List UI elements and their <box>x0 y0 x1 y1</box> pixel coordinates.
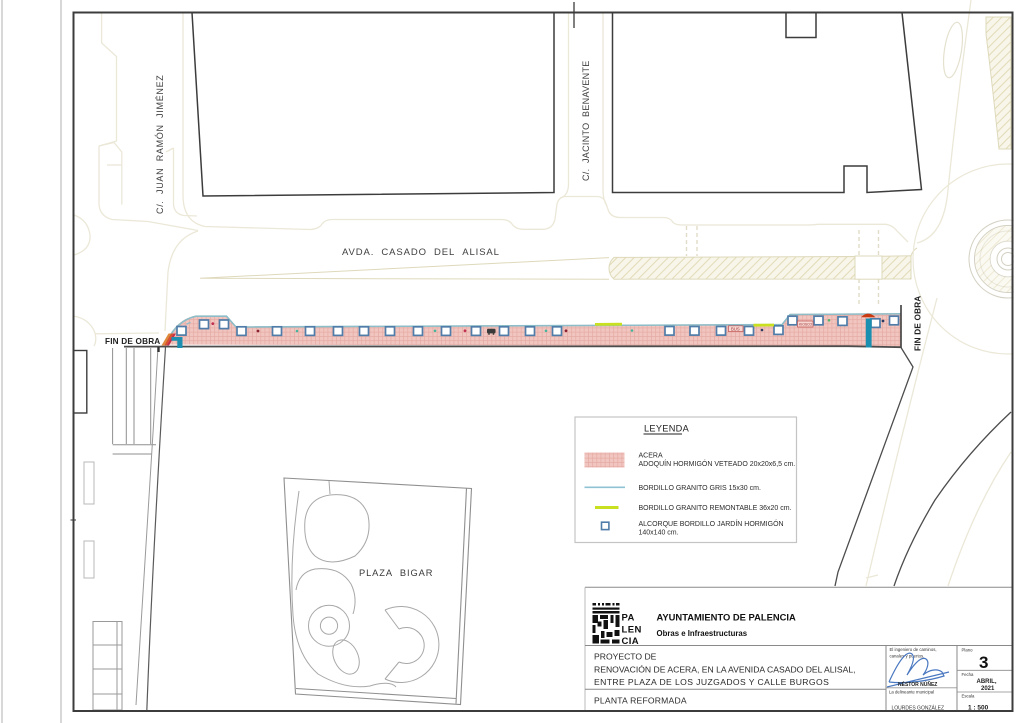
svg-text:ABRIL,: ABRIL, <box>977 679 997 685</box>
svg-text:LEN: LEN <box>622 625 642 636</box>
svg-text:Plano: Plano <box>962 648 974 653</box>
svg-text:140x140 cm.: 140x140 cm. <box>639 529 679 536</box>
svg-text:RENOVACIÓN DE ACERA, EN LA AVE: RENOVACIÓN DE ACERA, EN LA AVENIDA CASAD… <box>594 665 856 675</box>
svg-text:BORDILLO GRANITO REMONTABLE 36: BORDILLO GRANITO REMONTABLE 36x20 cm. <box>639 505 792 512</box>
svg-text:2021: 2021 <box>981 686 995 692</box>
svg-text:3: 3 <box>979 653 988 672</box>
svg-text:Escala: Escala <box>962 694 976 699</box>
svg-text:NÉSTOR NÚÑEZ: NÉSTOR NÚÑEZ <box>898 680 937 688</box>
svg-text:C/. JUAN RAMÓN JIMÉNEZ: C/. JUAN RAMÓN JIMÉNEZ <box>155 74 165 214</box>
svg-text:ENTRE PLAZA DE LOS JUZGADOS Y: ENTRE PLAZA DE LOS JUZGADOS Y CALLE BURG… <box>594 677 829 687</box>
svg-text:FIN DE OBRA: FIN DE OBRA <box>914 296 923 351</box>
svg-text:PLAZA BIGAR: PLAZA BIGAR <box>359 568 433 578</box>
svg-text:Fecha: Fecha <box>962 672 975 677</box>
svg-text:ACERA: ACERA <box>639 452 663 459</box>
svg-text:AVDA. CASADO DEL ALISAL: AVDA. CASADO DEL ALISAL <box>342 247 500 258</box>
svg-text:KIOSCO: KIOSCO <box>799 323 813 327</box>
svg-text:PLANTA REFORMADA: PLANTA REFORMADA <box>594 696 687 706</box>
svg-text:ADOQUÍN HORMIGÓN VETEADO 20x20: ADOQUÍN HORMIGÓN VETEADO 20x20x6,5 cm. <box>639 459 796 468</box>
svg-text:BORDILLO GRANITO GRIS 15x30 cm: BORDILLO GRANITO GRIS 15x30 cm. <box>639 485 761 492</box>
svg-text:C/. JACINTO BENAVENTE: C/. JACINTO BENAVENTE <box>581 60 591 181</box>
svg-text:ALCORQUE BORDILLO JARDÍN HORMI: ALCORQUE BORDILLO JARDÍN HORMIGÓN <box>639 519 784 528</box>
svg-text:PROYECTO DE: PROYECTO DE <box>594 652 657 662</box>
svg-text:Obras e Infraestructuras: Obras e Infraestructuras <box>657 629 748 638</box>
svg-text:El ingeniero de caminos,: El ingeniero de caminos, <box>890 647 937 652</box>
svg-text:FIN DE OBRA: FIN DE OBRA <box>105 337 160 346</box>
svg-text:La delineante municipal: La delineante municipal <box>889 690 934 695</box>
svg-text:PA: PA <box>622 613 635 624</box>
svg-text:LEYENDA: LEYENDA <box>644 424 690 434</box>
svg-text:BUS: BUS <box>731 326 740 331</box>
svg-text:AYUNTAMIENTO DE PALENCIA: AYUNTAMIENTO DE PALENCIA <box>657 612 796 623</box>
